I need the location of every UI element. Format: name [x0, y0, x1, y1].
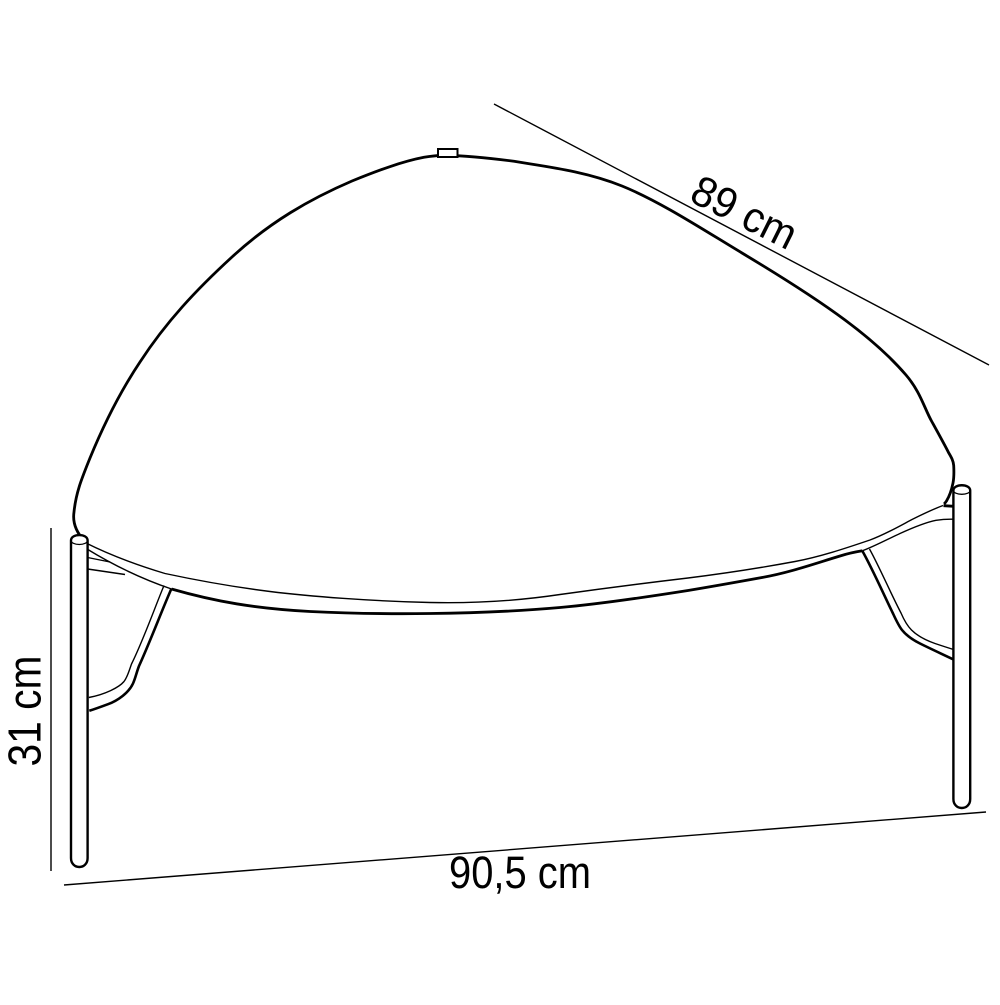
svg-text:90,5 cm: 90,5 cm: [449, 847, 591, 898]
svg-text:31 cm: 31 cm: [0, 656, 51, 767]
